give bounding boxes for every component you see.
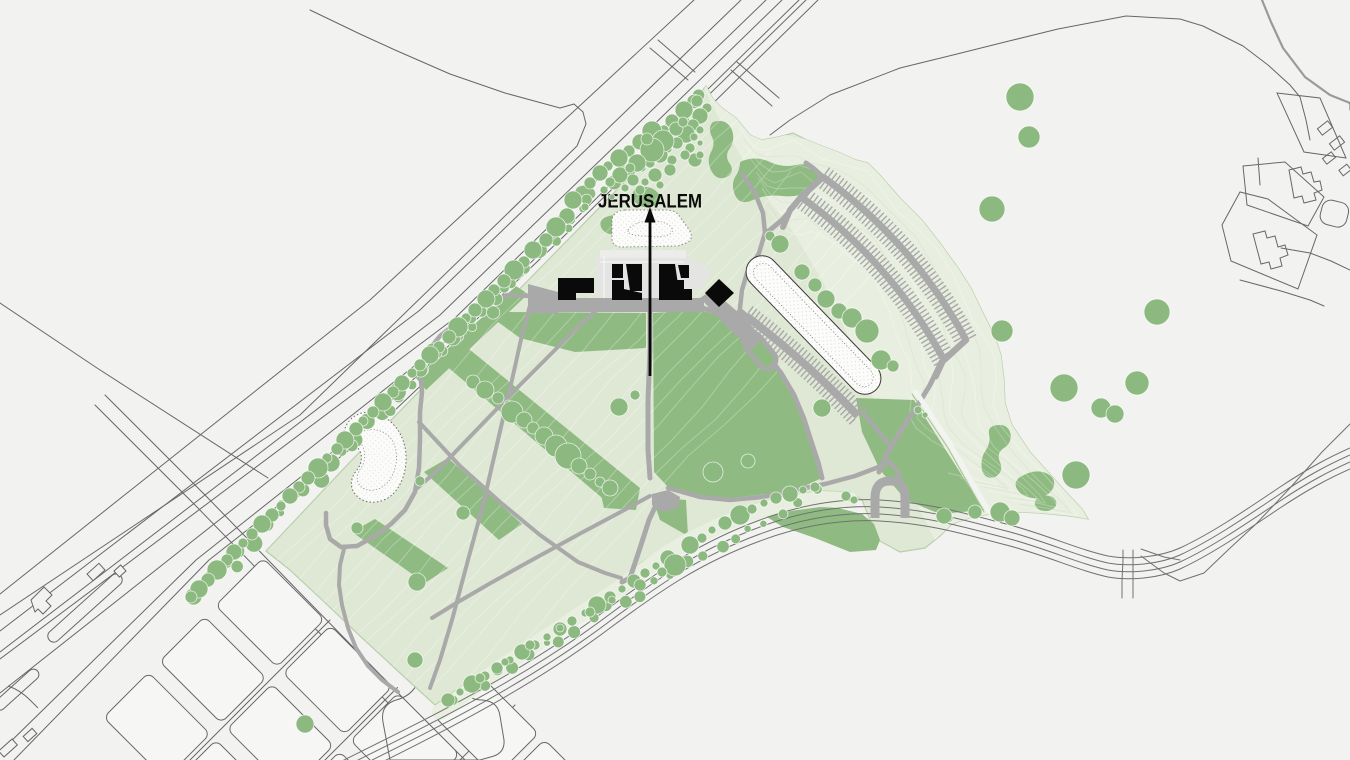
svg-text:JERUSALEM: JERUSALEM xyxy=(598,191,702,213)
